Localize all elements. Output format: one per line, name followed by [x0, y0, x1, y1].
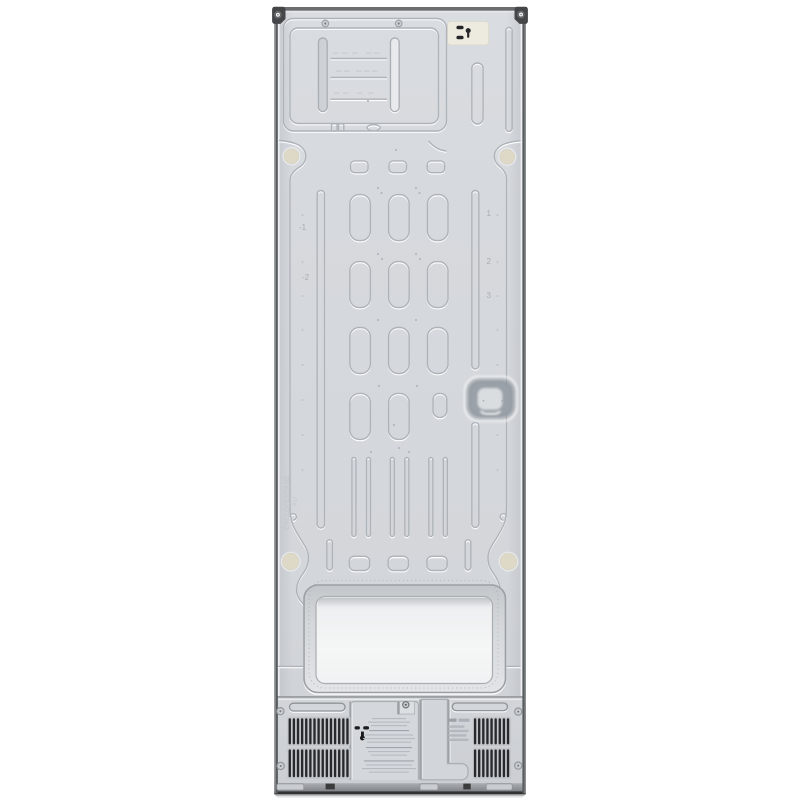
svg-text:-1: -1 [299, 223, 307, 232]
svg-text:1: 1 [487, 209, 492, 218]
svg-text:-2: -2 [302, 273, 310, 282]
svg-text:PU: PU [292, 497, 299, 506]
svg-text:CYCLOPENTANE: CYCLOPENTANE [284, 475, 291, 530]
svg-text:3: 3 [487, 291, 492, 300]
svg-text:2: 2 [487, 257, 492, 266]
